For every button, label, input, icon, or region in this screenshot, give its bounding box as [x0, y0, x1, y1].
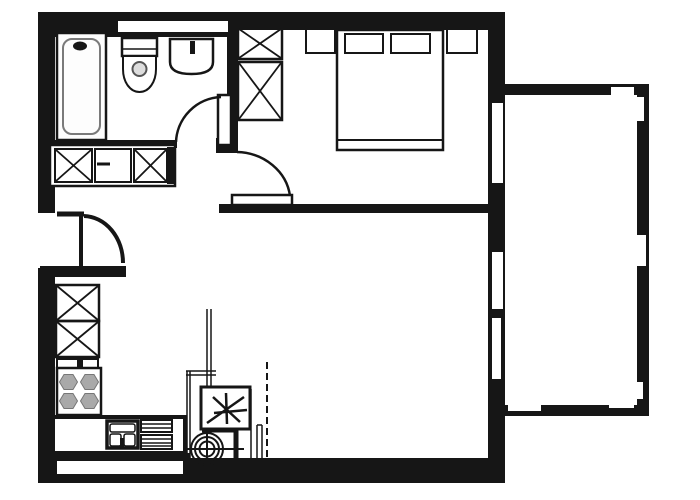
water-heater-unit — [184, 309, 267, 471]
bathroom-fixtures — [50, 33, 231, 186]
slot-balcony-br-v — [634, 382, 643, 399]
niche-bathroom-top — [118, 21, 228, 32]
burner-1 — [60, 375, 78, 390]
bathroom-door-leaf — [218, 95, 231, 145]
window-kitchen — [57, 461, 183, 474]
bedroom-fixtures — [232, 28, 477, 205]
slot-balcony-br-h — [609, 399, 634, 408]
pillow-right — [391, 34, 430, 53]
bathtub-drain — [73, 42, 87, 51]
burner-4 — [81, 394, 99, 409]
toilet-tank — [122, 38, 157, 56]
cabinet-row — [50, 145, 175, 186]
burner-3 — [60, 394, 78, 409]
sink-faucet — [120, 438, 124, 448]
slot-balcony-right — [636, 235, 646, 266]
floor-plan-svg — [0, 0, 700, 500]
slot-kitchen-bar — [56, 277, 107, 283]
washbasin-faucet — [190, 41, 195, 54]
kitchen-fixtures — [53, 285, 185, 453]
wall-bottom-main — [185, 458, 505, 483]
floor-plan — [0, 0, 700, 500]
kitchen-drawer-handle — [77, 358, 83, 367]
pillow-left — [345, 34, 383, 53]
entry-door — [57, 214, 123, 268]
toilet-flush — [133, 62, 147, 76]
slot-balcony-tr-h — [611, 87, 634, 96]
wall-right — [488, 12, 505, 483]
nightstand-right — [447, 28, 477, 53]
bathroom-door-arc — [176, 97, 221, 142]
burner-2 — [81, 375, 99, 390]
entry-door-arc — [84, 216, 123, 263]
slot-balcony-tr-v — [635, 97, 644, 121]
window-bedroom — [492, 103, 503, 183]
bedroom-door-arc — [237, 152, 290, 196]
window-living-upper — [492, 252, 503, 309]
window-living-lower — [492, 318, 501, 379]
slot-balcony-bl-h — [508, 400, 541, 411]
nightstand-left — [306, 28, 335, 53]
cabinet-row-end — [167, 147, 175, 184]
bedroom-door-leaf — [232, 195, 292, 205]
